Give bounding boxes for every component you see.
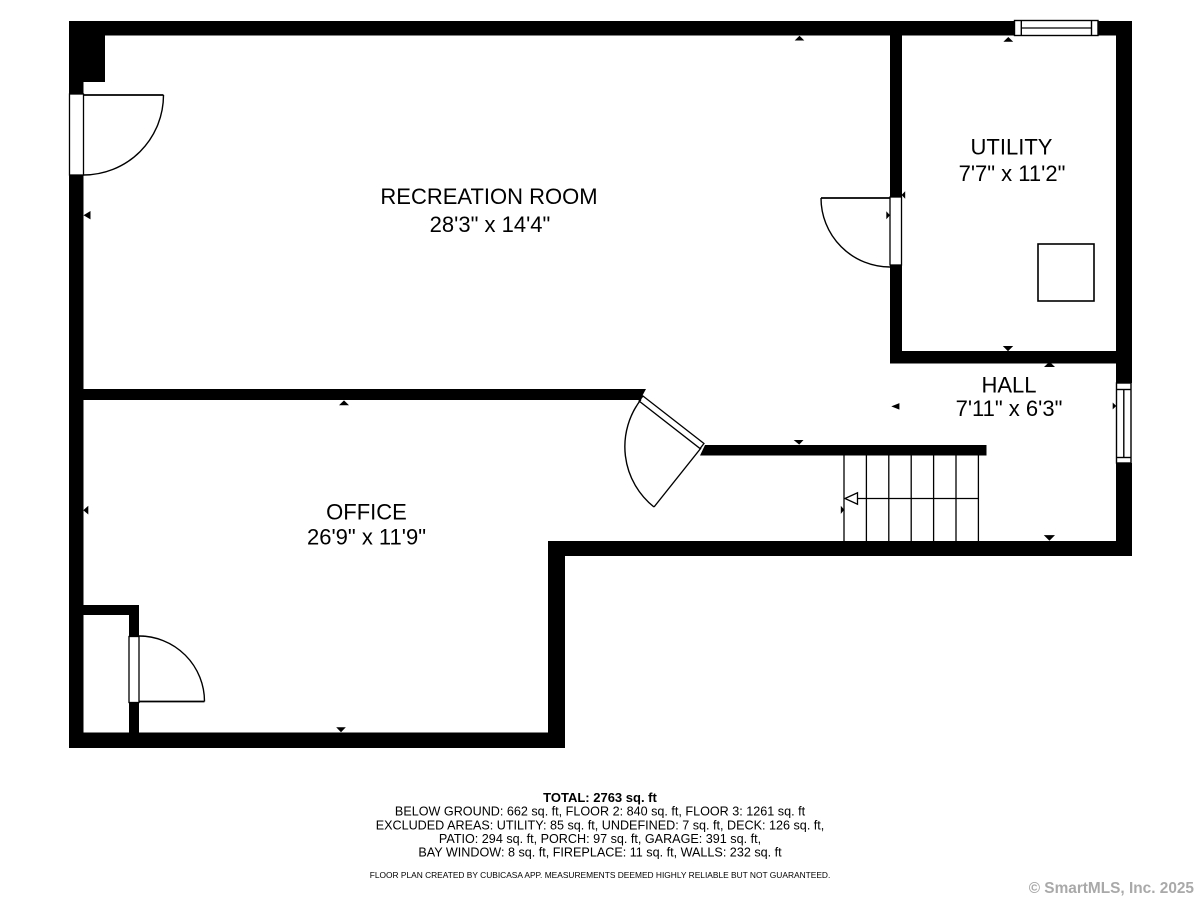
svg-text:BAY WINDOW: 8 sq. ft, FIREPLAC: BAY WINDOW: 8 sq. ft, FIREPLACE: 11 sq. … xyxy=(418,846,782,860)
svg-text:BELOW GROUND: 662 sq. ft, FLOO: BELOW GROUND: 662 sq. ft, FLOOR 2: 840 s… xyxy=(395,805,806,819)
svg-text:FLOOR PLAN CREATED BY CUBICASA: FLOOR PLAN CREATED BY CUBICASA APP. MEAS… xyxy=(370,870,831,880)
svg-text:© SmartMLS, Inc. 2025: © SmartMLS, Inc. 2025 xyxy=(1029,880,1195,897)
svg-text:7'7" x 11'2": 7'7" x 11'2" xyxy=(959,161,1066,186)
svg-text:7'11" x 6'3": 7'11" x 6'3" xyxy=(956,396,1063,421)
svg-text:28'3" x 14'4": 28'3" x 14'4" xyxy=(430,212,551,237)
svg-text:RECREATION ROOM: RECREATION ROOM xyxy=(380,184,597,209)
svg-text:UTILITY: UTILITY xyxy=(971,135,1053,160)
svg-text:EXCLUDED AREAS: UTILITY: 85 sq: EXCLUDED AREAS: UTILITY: 85 sq. ft, UNDE… xyxy=(376,819,825,833)
svg-text:PATIO: 294 sq. ft, PORCH: 97 s: PATIO: 294 sq. ft, PORCH: 97 sq. ft, GAR… xyxy=(439,832,761,846)
svg-text:26'9" x 11'9": 26'9" x 11'9" xyxy=(307,525,426,550)
svg-text:HALL: HALL xyxy=(981,373,1036,398)
svg-text:TOTAL: 2763 sq. ft: TOTAL: 2763 sq. ft xyxy=(543,790,657,805)
svg-text:OFFICE: OFFICE xyxy=(326,500,407,525)
